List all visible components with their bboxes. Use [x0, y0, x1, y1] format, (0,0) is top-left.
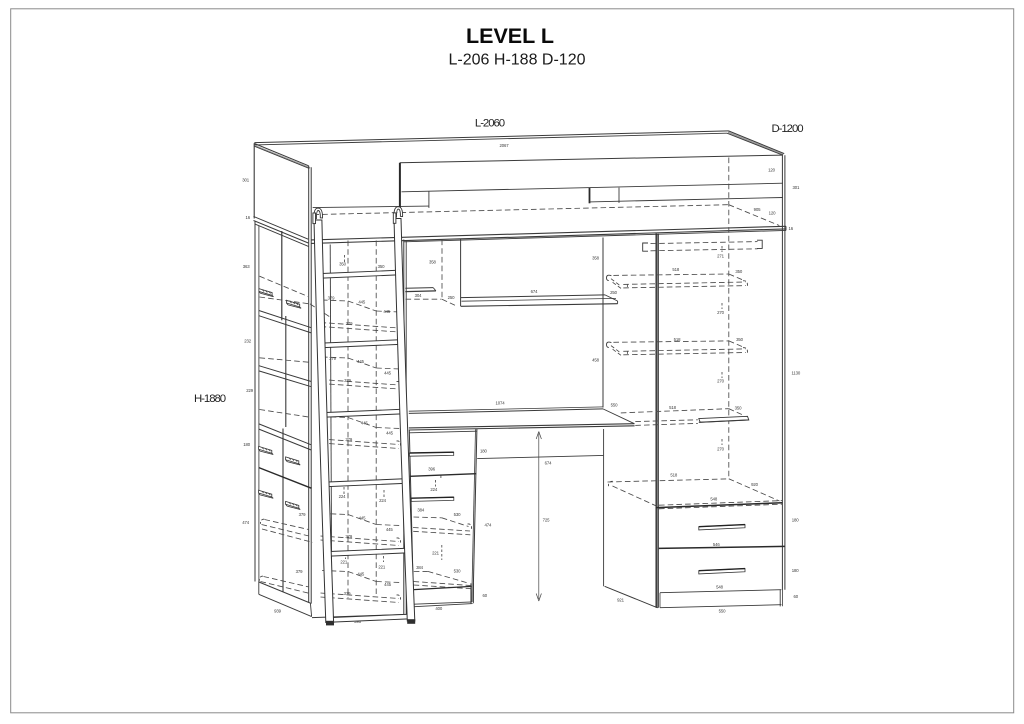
svg-text:445: 445 [361, 421, 368, 426]
svg-text:550: 550 [611, 402, 618, 407]
svg-text:905: 905 [754, 207, 761, 212]
svg-text:350: 350 [339, 262, 346, 267]
svg-text:445: 445 [384, 582, 391, 587]
svg-text:120: 120 [768, 168, 775, 173]
svg-text:350: 350 [735, 269, 742, 274]
svg-text:2067: 2067 [500, 143, 510, 148]
svg-text:445: 445 [357, 359, 364, 364]
svg-text:L-206 H-188 D-120: L-206 H-188 D-120 [449, 52, 586, 69]
svg-text:379: 379 [329, 356, 336, 361]
svg-text:518: 518 [672, 267, 679, 272]
svg-text:229: 229 [246, 388, 253, 393]
svg-text:379: 379 [328, 296, 335, 301]
svg-text:1130: 1130 [792, 371, 801, 376]
svg-text:458: 458 [592, 357, 599, 362]
svg-text:445: 445 [383, 309, 390, 314]
svg-text:725: 725 [543, 518, 550, 523]
svg-text:518: 518 [674, 337, 681, 342]
svg-text:674: 674 [531, 289, 538, 294]
svg-text:445: 445 [386, 527, 393, 532]
svg-text:548: 548 [716, 585, 723, 590]
svg-text:474: 474 [242, 520, 249, 525]
svg-text:379: 379 [296, 569, 303, 574]
svg-text:180: 180 [243, 442, 250, 447]
svg-text:363: 363 [243, 264, 250, 269]
svg-text:221: 221 [378, 565, 385, 570]
svg-text:D-1200: D-1200 [771, 123, 803, 135]
svg-text:920: 920 [751, 482, 758, 487]
svg-text:60: 60 [483, 593, 488, 598]
svg-text:180: 180 [792, 568, 799, 573]
svg-text:384: 384 [416, 565, 423, 570]
svg-text:674: 674 [545, 460, 552, 465]
svg-text:301: 301 [242, 178, 249, 183]
svg-text:224: 224 [430, 487, 437, 492]
svg-text:16: 16 [246, 215, 251, 220]
svg-text:939: 939 [274, 609, 281, 614]
svg-text:350: 350 [736, 337, 743, 342]
svg-text:16: 16 [789, 226, 794, 231]
svg-text:180: 180 [792, 518, 799, 523]
svg-text:379: 379 [299, 512, 306, 517]
svg-text:221: 221 [432, 551, 439, 556]
svg-text:270: 270 [717, 446, 724, 451]
svg-text:546: 546 [713, 542, 720, 547]
svg-text:379: 379 [344, 378, 351, 383]
svg-text:548: 548 [710, 496, 717, 501]
svg-text:379: 379 [345, 534, 352, 539]
svg-text:445: 445 [358, 299, 365, 304]
svg-text:1074: 1074 [496, 401, 506, 406]
svg-text:301: 301 [793, 185, 800, 190]
svg-text:350: 350 [378, 264, 385, 269]
svg-text:445: 445 [384, 371, 391, 376]
svg-text:180: 180 [480, 448, 487, 453]
svg-text:530: 530 [454, 512, 461, 517]
svg-text:518: 518 [670, 472, 677, 477]
svg-text:304: 304 [415, 293, 422, 298]
svg-text:H-1880: H-1880 [194, 393, 226, 405]
svg-text:221: 221 [340, 560, 347, 565]
svg-text:358: 358 [429, 259, 436, 264]
svg-text:445: 445 [386, 431, 393, 436]
svg-text:379: 379 [344, 591, 351, 596]
svg-text:271: 271 [717, 253, 724, 258]
svg-text:379: 379 [346, 321, 353, 326]
svg-text:400: 400 [435, 606, 442, 611]
svg-text:921: 921 [617, 598, 624, 603]
svg-text:60: 60 [794, 594, 799, 599]
svg-text:270: 270 [717, 310, 724, 315]
svg-text:224: 224 [339, 494, 346, 499]
svg-text:LEVEL L: LEVEL L [466, 24, 554, 48]
svg-text:396: 396 [428, 467, 435, 472]
svg-text:518: 518 [669, 405, 676, 410]
svg-text:250: 250 [448, 295, 455, 300]
svg-text:550: 550 [719, 609, 726, 614]
svg-text:530: 530 [454, 569, 461, 574]
svg-text:384: 384 [417, 508, 424, 513]
svg-text:379: 379 [345, 437, 352, 442]
svg-text:350: 350 [735, 406, 742, 411]
svg-text:L-2060: L-2060 [475, 118, 505, 130]
svg-text:224: 224 [379, 498, 386, 503]
svg-text:250: 250 [610, 290, 617, 295]
svg-text:445: 445 [357, 572, 364, 577]
svg-text:474: 474 [485, 523, 492, 528]
svg-text:120: 120 [769, 211, 776, 216]
svg-text:270: 270 [717, 379, 724, 384]
svg-text:232: 232 [244, 339, 251, 344]
svg-text:358: 358 [592, 255, 599, 260]
svg-text:445: 445 [359, 516, 366, 521]
